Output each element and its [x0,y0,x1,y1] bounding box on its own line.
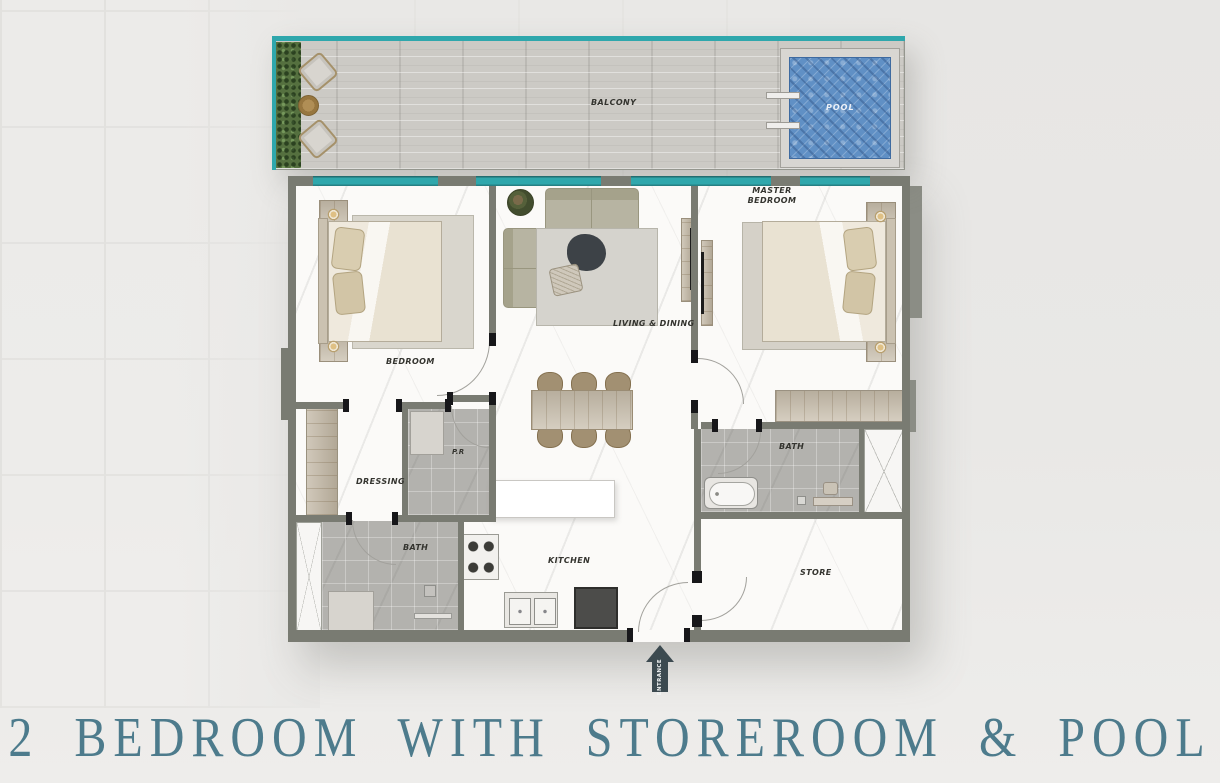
pool-ladder [766,122,800,129]
door-jamb [445,399,451,412]
vanity-counter [813,497,853,506]
window [313,176,438,186]
door-jamb [712,419,718,432]
door-jamb [489,333,496,346]
door-jamb [396,399,402,412]
bathtub [704,477,758,509]
pillow [842,271,876,316]
bath-left-label: BATH [403,543,428,552]
door-jamb [692,571,702,583]
master-bedroom-label: MASTER BEDROOM [737,186,807,206]
balcony-label: BALCONY [591,98,636,107]
dining-table [531,390,633,430]
pillow [331,226,366,271]
dressing-wardrobe [306,406,338,516]
wall [859,429,864,512]
service-shaft [296,522,322,632]
balcony-glass-rail [272,36,905,41]
door-jamb [692,615,702,627]
wall [694,512,910,519]
wall [762,422,910,429]
entrance-label: ENTRANCE [657,659,663,695]
side-table-round [298,95,319,116]
pillow [843,226,878,271]
wall [489,186,496,338]
table-lamp [874,341,887,354]
wall [489,395,496,522]
bedroom-label: BEDROOM [386,357,435,366]
door-jamb [627,628,633,642]
wall [288,176,296,642]
door-jamb [691,350,698,363]
door-jamb [346,512,352,525]
pool-ladder [766,92,800,99]
wall [296,515,352,522]
dressing-label: DRESSING [356,477,405,486]
wall [402,402,451,409]
table-lamp [327,340,340,353]
kitchen-label: KITCHEN [548,556,590,565]
floorplan-page: BALCONY POOL BEDROOM LIVING & DINING MAS… [0,0,1220,783]
store-label: STORE [800,568,832,577]
pillow [332,271,366,316]
door-jamb [756,419,762,432]
tv-screen [701,252,704,314]
vanity-counter [410,411,444,455]
refrigerator [574,587,618,629]
entrance-arrow-shaft: ENTRANCE [652,662,668,692]
table-lamp [874,210,887,223]
table-lamp [327,208,340,221]
shower-bar [414,613,452,619]
wall [281,348,288,420]
pool-label: POOL [826,103,855,112]
master-wardrobe [775,390,903,422]
vanity-stool [823,482,838,495]
wall [902,176,910,642]
powder-room-label: P.R [452,448,465,456]
wall [458,515,464,642]
kitchen-island [489,480,615,518]
wall [296,402,345,409]
door-jamb [343,399,349,412]
living-dining-label: LIVING & DINING [613,319,695,328]
bed-headboard [318,218,328,344]
bath-master-label: BATH [779,442,804,451]
kitchen-sink [504,592,558,628]
shower-drain [424,585,436,597]
wall [688,630,910,642]
vanity-counter [328,591,374,631]
door-jamb [489,392,496,405]
wall [694,429,701,578]
window [800,176,870,186]
stove-cooktop [463,534,499,580]
service-shaft [864,429,904,514]
toilet-paper-holder [797,496,806,505]
door-jamb [684,628,690,642]
wall [402,402,408,522]
plan-title: 2 BEDROOM WITH STOREROOM & POOL [0,706,1220,770]
door-jamb [392,512,398,525]
window [631,176,771,186]
plant-pot [507,189,534,216]
window [476,176,601,186]
wall [398,515,496,522]
bed-headboard [886,218,896,344]
door-jamb [691,400,698,413]
wall [691,186,698,355]
